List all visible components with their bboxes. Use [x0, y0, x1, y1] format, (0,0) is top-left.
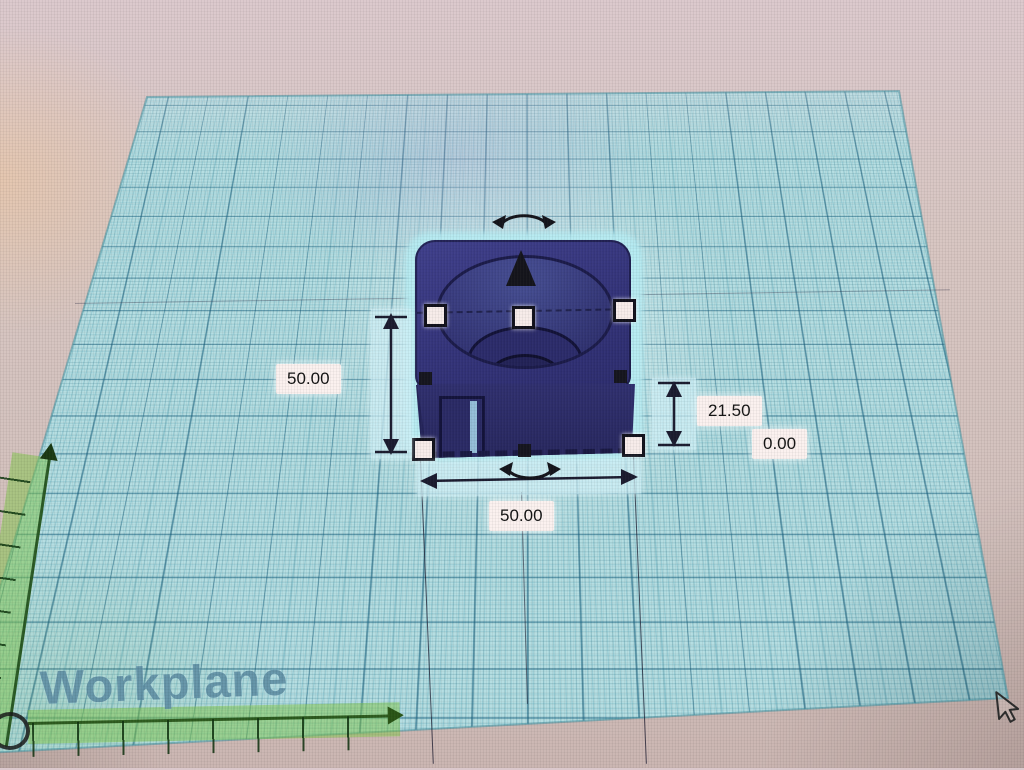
scale-handle-bottom-right[interactable] — [622, 434, 645, 457]
raise-handle-cone-icon[interactable] — [506, 250, 536, 286]
mouse-cursor-icon — [993, 689, 1023, 728]
workplane-label: Workplane — [39, 650, 289, 714]
dimension-label-width[interactable]: 50.00 — [489, 501, 554, 531]
scale-handle-bottom-left[interactable] — [412, 438, 435, 461]
edge-handle-right-icon[interactable] — [614, 370, 627, 383]
rotate-handle-top-icon[interactable] — [490, 198, 558, 234]
selected-3d-object[interactable] — [403, 232, 649, 472]
rotate-handle-bottom-icon[interactable] — [498, 457, 562, 491]
object-notch-highlight — [470, 401, 477, 453]
edge-handle-left-icon[interactable] — [419, 372, 432, 385]
dimension-label-elevation[interactable]: 0.00 — [752, 429, 807, 459]
dimension-label-left[interactable]: 50.00 — [276, 364, 341, 394]
horizontal-ruler-arrow-icon — [388, 706, 404, 724]
vertical-ruler-arrow-icon — [40, 442, 60, 461]
dimension-arrow-right-icon — [652, 378, 696, 450]
scale-handle-mid-center[interactable] — [512, 306, 535, 329]
dimension-label-height[interactable]: 21.50 — [697, 396, 762, 426]
scale-handle-mid-left[interactable] — [424, 304, 447, 327]
edge-handle-bottom-icon[interactable] — [518, 444, 531, 457]
horizontal-ruler-ticks — [32, 715, 389, 756]
scale-handle-mid-right[interactable] — [613, 299, 636, 322]
dimension-arrow-left-icon — [371, 309, 411, 459]
